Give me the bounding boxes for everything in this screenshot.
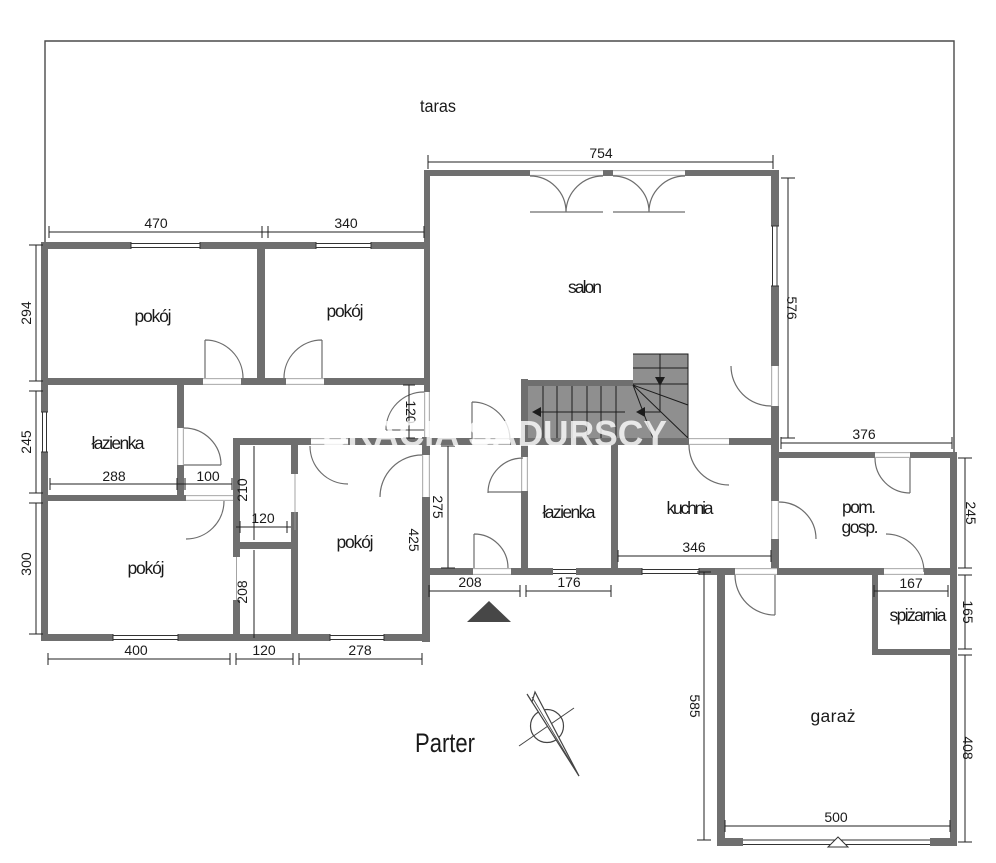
svg-text:294: 294 <box>18 301 34 325</box>
svg-text:120: 120 <box>251 510 275 526</box>
svg-text:210: 210 <box>234 478 250 502</box>
svg-text:278: 278 <box>348 642 372 658</box>
svg-text:łazienka: łazienka <box>92 433 145 453</box>
svg-text:165: 165 <box>960 600 976 624</box>
svg-text:łazienka: łazienka <box>543 502 596 522</box>
svg-text:pokój: pokój <box>128 558 165 578</box>
svg-text:576: 576 <box>784 296 800 320</box>
svg-text:BRACIA SADURSCY: BRACIA SADURSCY <box>322 413 667 454</box>
svg-text:346: 346 <box>682 539 706 555</box>
svg-text:500: 500 <box>824 809 848 825</box>
svg-text:176: 176 <box>557 574 581 590</box>
svg-text:spiżarnia: spiżarnia <box>890 605 947 625</box>
svg-text:208: 208 <box>458 574 482 590</box>
svg-text:340: 340 <box>334 215 358 231</box>
svg-text:245: 245 <box>963 501 979 525</box>
svg-text:300: 300 <box>18 552 34 576</box>
svg-text:275: 275 <box>430 495 446 519</box>
svg-text:208: 208 <box>234 580 250 604</box>
svg-text:gosp.: gosp. <box>842 517 879 537</box>
svg-text:585: 585 <box>687 694 703 718</box>
svg-text:pokój: pokój <box>337 532 374 552</box>
svg-text:376: 376 <box>852 426 876 442</box>
svg-text:pokój: pokój <box>135 306 172 326</box>
svg-text:245: 245 <box>18 430 34 454</box>
svg-text:taras: taras <box>420 96 456 116</box>
svg-text:754: 754 <box>589 145 613 161</box>
svg-text:pokój: pokój <box>327 301 364 321</box>
svg-text:425: 425 <box>406 528 422 552</box>
svg-text:pom.: pom. <box>842 497 876 517</box>
svg-text:120: 120 <box>252 642 276 658</box>
svg-text:garaż: garaż <box>811 706 856 726</box>
svg-text:288: 288 <box>102 468 126 484</box>
svg-text:kuchnia: kuchnia <box>667 498 714 518</box>
svg-text:408: 408 <box>960 736 976 760</box>
svg-text:100: 100 <box>196 468 220 484</box>
svg-text:470: 470 <box>144 215 168 231</box>
svg-text:167: 167 <box>899 575 923 591</box>
svg-text:400: 400 <box>124 642 148 658</box>
svg-text:Parter: Parter <box>415 728 475 758</box>
svg-text:salon: salon <box>568 277 602 297</box>
